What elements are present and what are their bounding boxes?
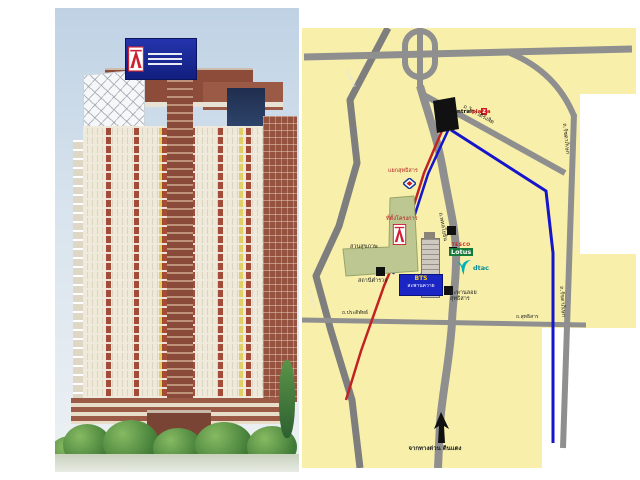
- project-marker-label: ที่ตั้งโครงการ: [386, 216, 418, 222]
- sign-text-lines: [148, 50, 182, 68]
- centralplaza-logo-red2: a: [487, 109, 491, 115]
- bts-station-line2: สะพานควาย: [400, 283, 442, 289]
- park-label: สวนสุขภาพ: [350, 244, 378, 250]
- mrt-station-icon: [403, 178, 416, 189]
- dtac-logo-icon: [456, 258, 472, 276]
- palm-tree: [279, 360, 295, 438]
- brick-core-column: [167, 72, 193, 402]
- project-logo-icon: [392, 224, 407, 245]
- left-balcony-edge: [73, 140, 83, 400]
- from-expressway-note: จากทางด่วน ดินแดง: [393, 446, 477, 453]
- police-station-label: สถานีตำรวจ: [358, 278, 387, 284]
- building-rendering-panel: [55, 8, 299, 472]
- road-label-pradipat: ถ.ประดิพัทธ์: [342, 311, 368, 317]
- map-white-area: [580, 94, 636, 254]
- police-station-building: [376, 267, 385, 276]
- tesco-lotus-logo: TESCO Lotus: [449, 243, 473, 256]
- right-wing: [263, 116, 297, 402]
- ground-strip: [55, 454, 299, 472]
- location-map-panel: centralplaza แยกสุทธิสาร สวนสุขภาพ ที่ตั…: [302, 28, 636, 468]
- map-white-area: [542, 328, 636, 468]
- junction-label: แยกสุทธิสาร: [388, 168, 418, 174]
- dtac-text: dtac: [473, 264, 489, 272]
- building-block: [447, 226, 456, 235]
- bts-station-box: BTS สะพานควาย: [399, 274, 443, 296]
- bts-station-line1: BTS: [400, 275, 442, 283]
- project-logo-icon: [128, 46, 144, 72]
- flyover-label: สะพานลอย สุทธิสาร: [450, 290, 477, 303]
- screenshot-stage: centralplaza แยกสุทธิสาร สวนสุขภาพ ที่ตั…: [0, 0, 640, 480]
- road-label-sutthisan: ถ.สุทธิสาร: [516, 315, 539, 321]
- flyover-label-line2: สุทธิสาร: [450, 296, 477, 302]
- rooftop-sign: [125, 38, 197, 80]
- lotus-text: Lotus: [449, 248, 473, 256]
